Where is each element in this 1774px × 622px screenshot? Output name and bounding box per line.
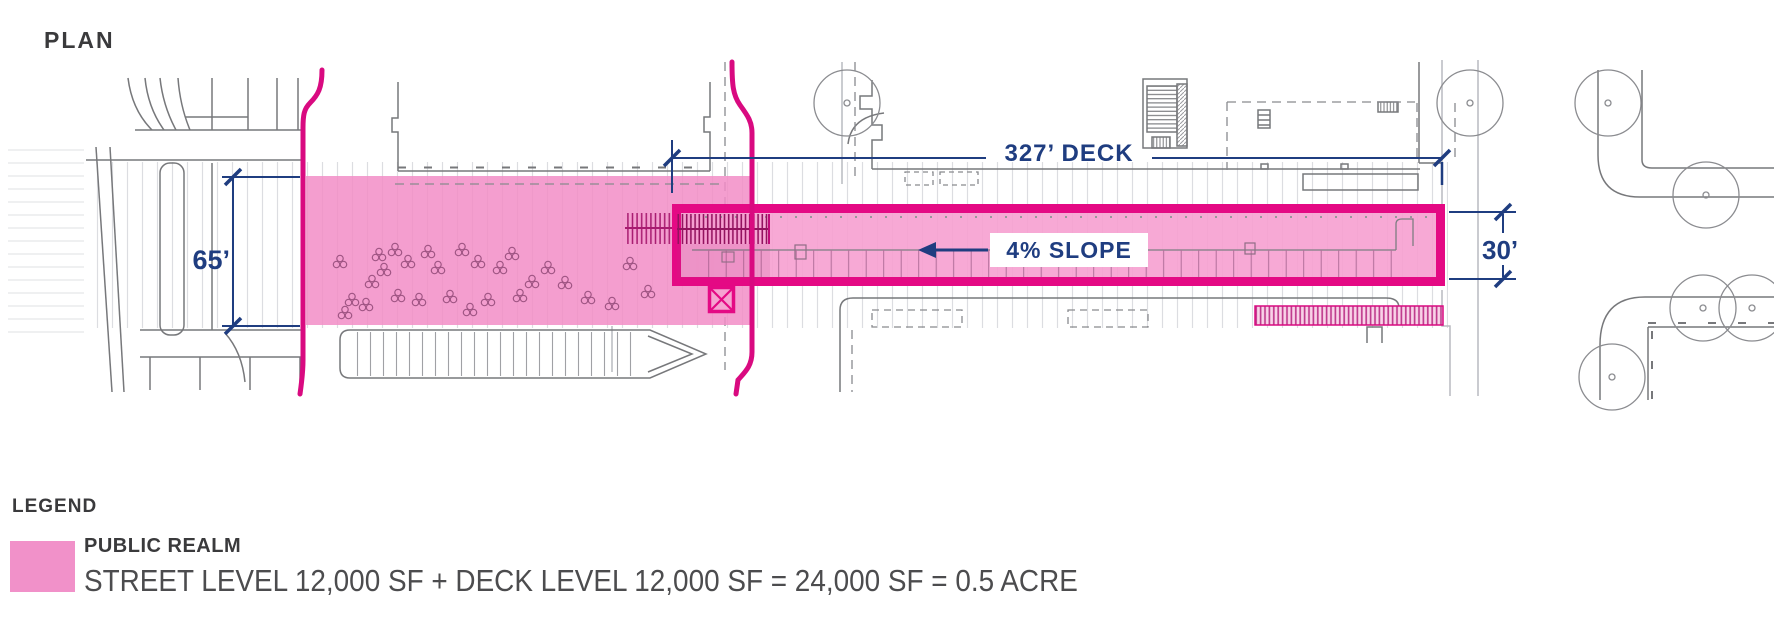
- plan-page: PLAN 65’ 327’ DECK 30’ 4% SLOPE LEGEND P…: [0, 0, 1774, 622]
- legend-item-label: PUBLIC REALM: [84, 535, 241, 558]
- slope-label: 4% SLOPE: [990, 233, 1148, 267]
- plan-drawing: [0, 0, 1774, 622]
- legend-heading: LEGEND: [12, 496, 97, 518]
- stairs: [625, 213, 769, 244]
- dimension-deck-length: 327’ DECK: [983, 140, 1155, 168]
- dimension-deck-width: 30’: [1482, 235, 1518, 266]
- legend-swatch-public-realm: [10, 541, 75, 592]
- page-title: PLAN: [44, 27, 115, 54]
- elevator: [710, 288, 734, 312]
- dimension-street-width: 65’: [168, 245, 230, 276]
- deck-edge-strip: [1255, 306, 1443, 325]
- legend-item-detail: STREET LEVEL 12,000 SF + DECK LEVEL 12,0…: [84, 563, 1078, 599]
